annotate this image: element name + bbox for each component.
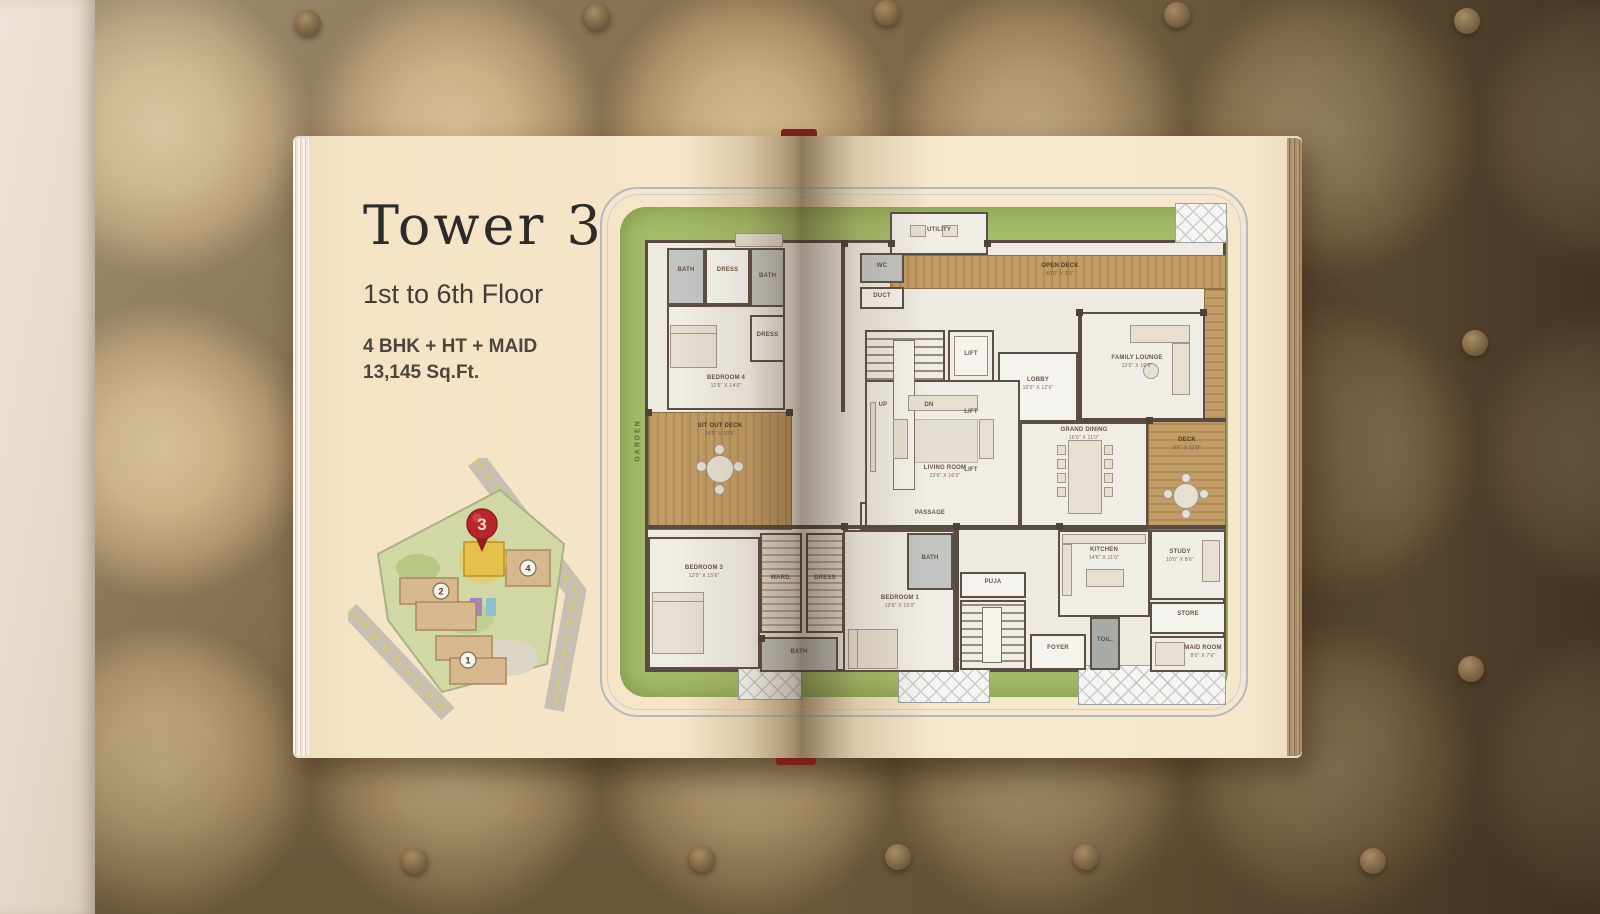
dining-chair <box>1104 487 1113 497</box>
pier <box>758 635 765 642</box>
dining-table <box>1068 440 1102 514</box>
tuft-button <box>1073 844 1099 870</box>
pier <box>645 409 652 416</box>
label-bath-3: BATH <box>760 649 838 657</box>
label-maid: MAID ROOM8'0" X 7'6" <box>1180 645 1226 659</box>
deck-chair <box>714 444 725 455</box>
dining-chair <box>1104 459 1113 469</box>
pier <box>1146 417 1153 424</box>
pier <box>953 523 960 530</box>
pool <box>486 598 496 616</box>
dining-chair <box>1057 459 1066 469</box>
stair-rail <box>982 607 1002 663</box>
label-puja: PUJA <box>960 579 1026 587</box>
sofa-side <box>979 419 994 459</box>
deck-chair <box>1181 473 1191 483</box>
config-line: 4 BHK + HT + MAID <box>363 334 604 360</box>
deck-right-column <box>1204 289 1226 420</box>
unit-specs: 4 BHK + HT + MAID 13,145 Sq.Ft. <box>363 334 604 385</box>
label-utility: UTILITY <box>890 227 988 235</box>
label-sitout: SIT OUT DECK14'0" X 10'6" <box>648 423 792 437</box>
wall <box>955 527 959 672</box>
label-lift-2: LIFT <box>948 409 994 417</box>
walkin-wardrobe-1 <box>760 533 802 633</box>
label-stair-up: UP <box>868 402 898 410</box>
deck-chair <box>696 461 707 472</box>
garden-label: GARDEN <box>635 411 642 471</box>
pier <box>984 240 991 247</box>
floor-range-subtitle: 1st to 6th Floor <box>363 279 604 310</box>
deck-round-table <box>1173 483 1199 509</box>
bed-pillows <box>670 325 717 334</box>
label-toilet: TOIL. <box>1090 637 1120 645</box>
label-lobby-2: FOYER <box>1030 645 1086 653</box>
tuft-button <box>874 0 900 26</box>
label-wc: WC <box>860 263 904 271</box>
living-rug <box>910 419 978 463</box>
label-bath-a: BATH <box>667 267 705 275</box>
page-edge-stack-left <box>293 138 309 756</box>
wall <box>841 240 845 412</box>
book-side-shadow <box>1286 150 1406 790</box>
area-line: 13,145 Sq.Ft. <box>363 360 604 386</box>
bathtub <box>735 233 783 247</box>
tuft-button <box>402 848 428 874</box>
deck-chair <box>733 461 744 472</box>
label-wardrobe-2: DRESS <box>806 575 844 583</box>
room-bath-a <box>667 248 705 305</box>
label-bedroom-4: BEDROOM 412'6" X 14'0" <box>670 375 782 389</box>
tuft-button <box>689 846 715 872</box>
dining-chair <box>1057 487 1066 497</box>
tuft-button <box>1360 848 1386 874</box>
floor-plan: GARDEN <box>610 197 1238 707</box>
label-kitchen: KITCHEN14'6" X 11'0" <box>1058 547 1150 561</box>
site-plan-svg: 2 1 4 3 <box>348 458 598 720</box>
pier <box>841 240 848 247</box>
sofa-horizontal <box>1130 325 1190 343</box>
label-lift-1: LIFT <box>948 351 994 359</box>
deck-chair <box>1199 489 1209 499</box>
tuft-button <box>1454 8 1480 34</box>
label-deck-right: DECK9'6" X 12'0" <box>1148 437 1226 451</box>
label-dress-a: DRESS <box>705 267 750 275</box>
tuft-button <box>885 844 911 870</box>
pier <box>786 409 793 416</box>
deck-chair <box>1163 489 1173 499</box>
scene: Tower 3 1st to 6th Floor 4 BHK + HT + MA… <box>0 0 1600 914</box>
label-open-deck: OPEN DECK40'0" X 9'0" <box>940 263 1180 277</box>
label-wardrobe-1: WARD. <box>760 575 802 583</box>
wall <box>1080 418 1226 422</box>
label-passage: PASSAGE <box>860 510 1000 518</box>
tuft-button <box>1164 2 1190 28</box>
pier <box>1056 523 1063 530</box>
tower-3-pin-number: 3 <box>477 515 486 534</box>
bed-pillows <box>652 592 704 602</box>
label-bath-1: BATH <box>907 555 953 563</box>
dining-chair <box>1057 445 1066 455</box>
pier <box>841 523 848 530</box>
deck-round-table <box>706 455 734 483</box>
pier <box>1200 309 1207 316</box>
label-dress-b: DRESS <box>750 332 785 340</box>
deck-chair <box>714 484 725 495</box>
hatch-corner-topright <box>1175 203 1227 243</box>
pier <box>1076 309 1083 316</box>
kitchen-counter-top <box>1062 534 1146 544</box>
dining-chair <box>1057 473 1066 483</box>
kitchen-island <box>1086 569 1124 587</box>
title-block: Tower 3 1st to 6th Floor 4 BHK + HT + MA… <box>363 194 604 385</box>
open-brochure-book: Tower 3 1st to 6th Floor 4 BHK + HT + MA… <box>293 136 1302 758</box>
sofa-side <box>893 419 908 459</box>
pier <box>888 240 895 247</box>
tower-1-number: 1 <box>465 656 470 666</box>
bed-pillows <box>848 629 858 669</box>
tuft-button <box>1458 656 1484 682</box>
tower-2-number: 2 <box>438 587 443 597</box>
wall <box>645 525 1226 529</box>
tuft-button <box>584 4 610 30</box>
label-dining: GRAND DINING16'0" X 11'0" <box>1020 427 1148 441</box>
marble-wall-strip <box>0 0 95 914</box>
label-bedroom-3: BEDROOM 312'0" X 15'6" <box>650 565 758 579</box>
tv-console <box>870 402 876 472</box>
label-family-lounge: FAMILY LOUNGE13'0" X 16'6" <box>1082 355 1192 369</box>
page-edge-stack-right <box>1287 138 1302 756</box>
dining-chair <box>1104 445 1113 455</box>
room-dress-a <box>705 248 750 305</box>
label-bedroom-1: BEDROOM 113'6" X 15'0" <box>850 595 950 609</box>
label-stair-dn: DN <box>914 402 944 410</box>
label-living: LIVING ROOM23'6" X 16'0" <box>890 465 1000 479</box>
label-study: STUDY10'0" X 8'6" <box>1150 549 1210 563</box>
label-duct: DUCT <box>860 293 904 301</box>
tower-4-number: 4 <box>525 564 530 574</box>
label-lobby: LOBBY10'0" X 12'6" <box>998 377 1078 391</box>
sofa-vertical <box>1172 343 1190 395</box>
label-store: STORE <box>1150 611 1226 619</box>
page-title: Tower 3 <box>363 194 604 257</box>
site-plan-map: 2 1 4 3 <box>348 458 598 720</box>
label-bath-b: BATH <box>750 273 785 281</box>
tuft-button <box>295 10 321 36</box>
walkin-wardrobe-2 <box>806 533 844 633</box>
dining-chair <box>1104 473 1113 483</box>
deck-chair <box>1181 509 1191 519</box>
tuft-button <box>1462 330 1488 356</box>
